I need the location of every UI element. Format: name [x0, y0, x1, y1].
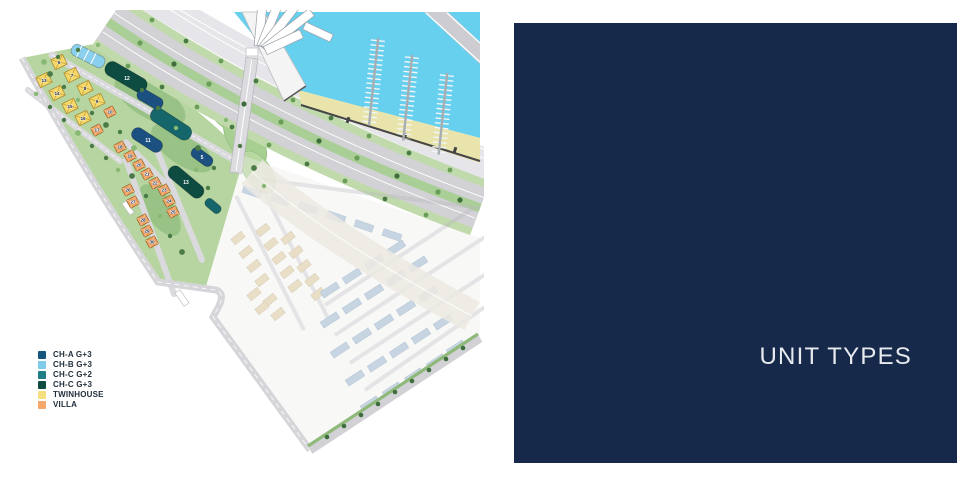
legend-chip: [38, 381, 46, 389]
page-title: UNIT TYPES: [760, 343, 912, 371]
legend-item: VILLA: [38, 401, 104, 409]
slide: 1211513 678913141516 1017181920212223242…: [0, 0, 980, 489]
legend-chip: [38, 391, 46, 399]
master-plan-map: 1211513 678913141516 1017181920212223242…: [0, 0, 490, 489]
svg-text:29: 29: [144, 229, 150, 234]
legend-chip: [38, 371, 46, 379]
svg-text:13: 13: [183, 180, 189, 186]
svg-text:19: 19: [127, 154, 133, 159]
svg-text:9: 9: [96, 99, 99, 104]
bridge-landing: [246, 48, 258, 56]
svg-text:14: 14: [54, 91, 60, 96]
legend-label: CH-C G+2: [53, 371, 92, 379]
legend-label: TWINHOUSE: [53, 391, 104, 399]
legend-chip: [38, 361, 46, 369]
legend-chip: [38, 351, 46, 359]
svg-text:26: 26: [125, 188, 131, 193]
legend-item: CH-C G+3: [38, 381, 104, 389]
svg-text:27: 27: [130, 200, 136, 205]
svg-text:24: 24: [166, 199, 172, 204]
svg-text:8: 8: [84, 86, 87, 91]
svg-text:25: 25: [170, 210, 176, 215]
legend-item: CH-C G+2: [38, 371, 104, 379]
svg-text:21: 21: [144, 172, 150, 177]
legend-chip: [38, 401, 46, 409]
legend-label: VILLA: [53, 401, 77, 409]
legend-item: CH-A G+3: [38, 351, 104, 359]
svg-text:17: 17: [94, 128, 100, 133]
svg-text:16: 16: [80, 116, 86, 121]
legend-label: CH-C G+3: [53, 381, 92, 389]
legend-item: CH-B G+3: [38, 361, 104, 369]
legend-item: TWINHOUSE: [38, 391, 104, 399]
svg-text:15: 15: [67, 104, 73, 109]
svg-text:22: 22: [152, 181, 158, 186]
legend-label: CH-B G+3: [53, 361, 92, 369]
unit-types-panel: UNIT TYPES: [514, 23, 957, 463]
unit-type-legend: CH-A G+3 CH-B G+3 CH-C G+2 CH-C G+3 TWIN…: [38, 351, 104, 409]
svg-text:20: 20: [136, 163, 142, 168]
svg-text:30: 30: [149, 240, 155, 245]
svg-text:13: 13: [41, 78, 47, 83]
svg-text:5: 5: [201, 155, 204, 161]
svg-text:12: 12: [124, 76, 130, 82]
svg-text:11: 11: [145, 138, 151, 144]
svg-text:28: 28: [140, 218, 146, 223]
svg-text:7: 7: [71, 73, 74, 78]
svg-text:6: 6: [58, 60, 61, 65]
svg-text:23: 23: [161, 188, 167, 193]
svg-text:18: 18: [117, 145, 123, 150]
svg-text:10: 10: [107, 110, 113, 115]
legend-label: CH-A G+3: [53, 351, 92, 359]
